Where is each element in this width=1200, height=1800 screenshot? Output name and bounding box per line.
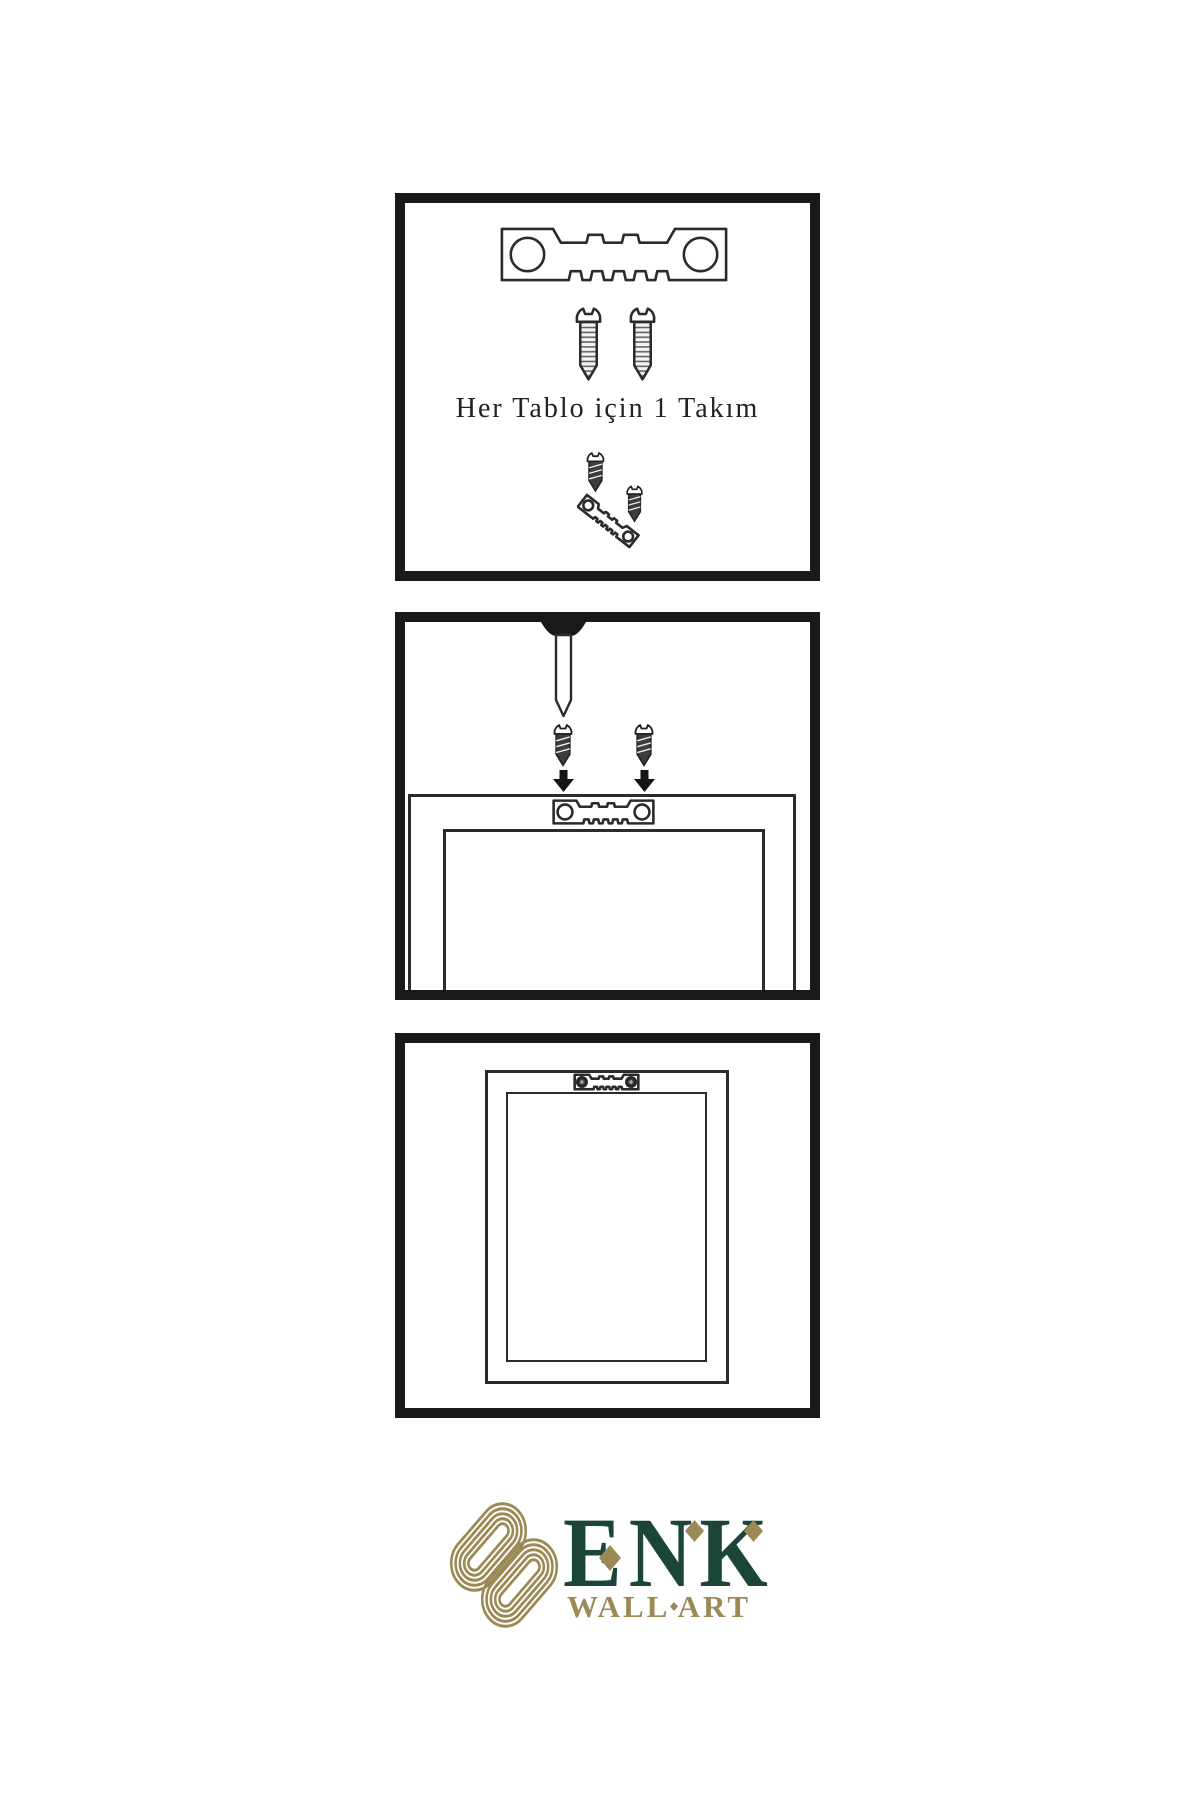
panel-hardware-kit: Her Tablo için 1 Takım — [395, 193, 820, 581]
hanging-frame-inner-outline — [506, 1092, 707, 1362]
kit-caption: Her Tablo için 1 Takım — [405, 393, 810, 425]
down-arrow-icon — [634, 770, 655, 792]
sawtooth-hanger-icon — [496, 223, 732, 286]
screw-icon — [633, 723, 655, 767]
wall-nail-icon — [540, 622, 587, 722]
interlaced-knot-icon — [448, 1500, 560, 1630]
screw-icon — [627, 306, 658, 382]
brand-logo: ENK WALL ART — [438, 1495, 858, 1675]
instruction-sheet: Her Tablo için 1 Takım — [0, 0, 1200, 1800]
sawtooth-hanger-icon — [551, 798, 656, 826]
screw-icon — [573, 306, 604, 382]
mounted-hanger-with-screws-icon — [573, 1073, 640, 1091]
panel-hanging-frame — [395, 1033, 820, 1418]
screw-into-hanger-icon — [577, 451, 657, 550]
brand-tagline: WALL ART — [567, 1591, 751, 1622]
down-arrow-icon — [553, 770, 574, 792]
frame-back-inner-outline — [443, 829, 765, 1000]
brand-name: ENK — [563, 1503, 775, 1603]
screw-icon — [552, 723, 574, 767]
panel-wall-mounting — [395, 612, 820, 1000]
